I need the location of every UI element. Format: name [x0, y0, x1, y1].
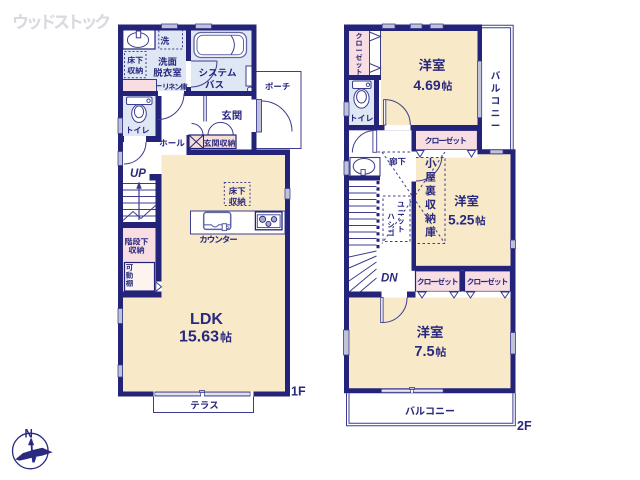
svg-text:LDK: LDK [190, 311, 223, 328]
svg-text:7.5: 7.5 [414, 344, 434, 360]
svg-text:15.63: 15.63 [179, 329, 219, 346]
svg-text:5.25: 5.25 [448, 213, 475, 228]
svg-text:1F: 1F [291, 385, 306, 399]
svg-text:2F: 2F [517, 419, 532, 433]
svg-text:UP: UP [130, 168, 146, 180]
svg-text:DN: DN [381, 273, 398, 285]
svg-text:4.69: 4.69 [413, 77, 440, 93]
